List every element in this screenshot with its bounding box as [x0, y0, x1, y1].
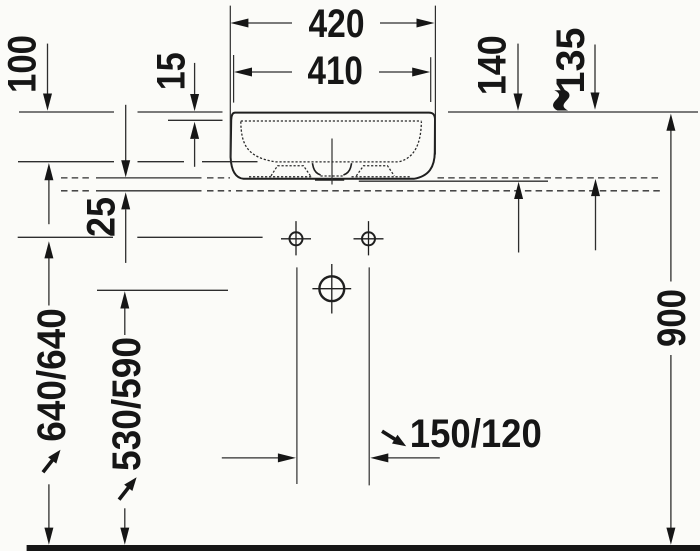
svg-text:150/120: 150/120: [410, 412, 542, 456]
svg-text:100: 100: [1, 35, 45, 93]
svg-text:15: 15: [150, 52, 194, 90]
svg-text:420: 420: [309, 2, 365, 46]
svg-text:410: 410: [308, 49, 363, 93]
svg-text:~: ~: [502, 89, 618, 112]
svg-text:530/590: 530/590: [105, 337, 149, 471]
svg-text:900: 900: [650, 289, 694, 347]
svg-text:140: 140: [470, 35, 514, 95]
svg-text:25: 25: [80, 197, 124, 237]
svg-text:640/640: 640/640: [30, 308, 74, 442]
svg-text:135: 135: [549, 28, 593, 94]
